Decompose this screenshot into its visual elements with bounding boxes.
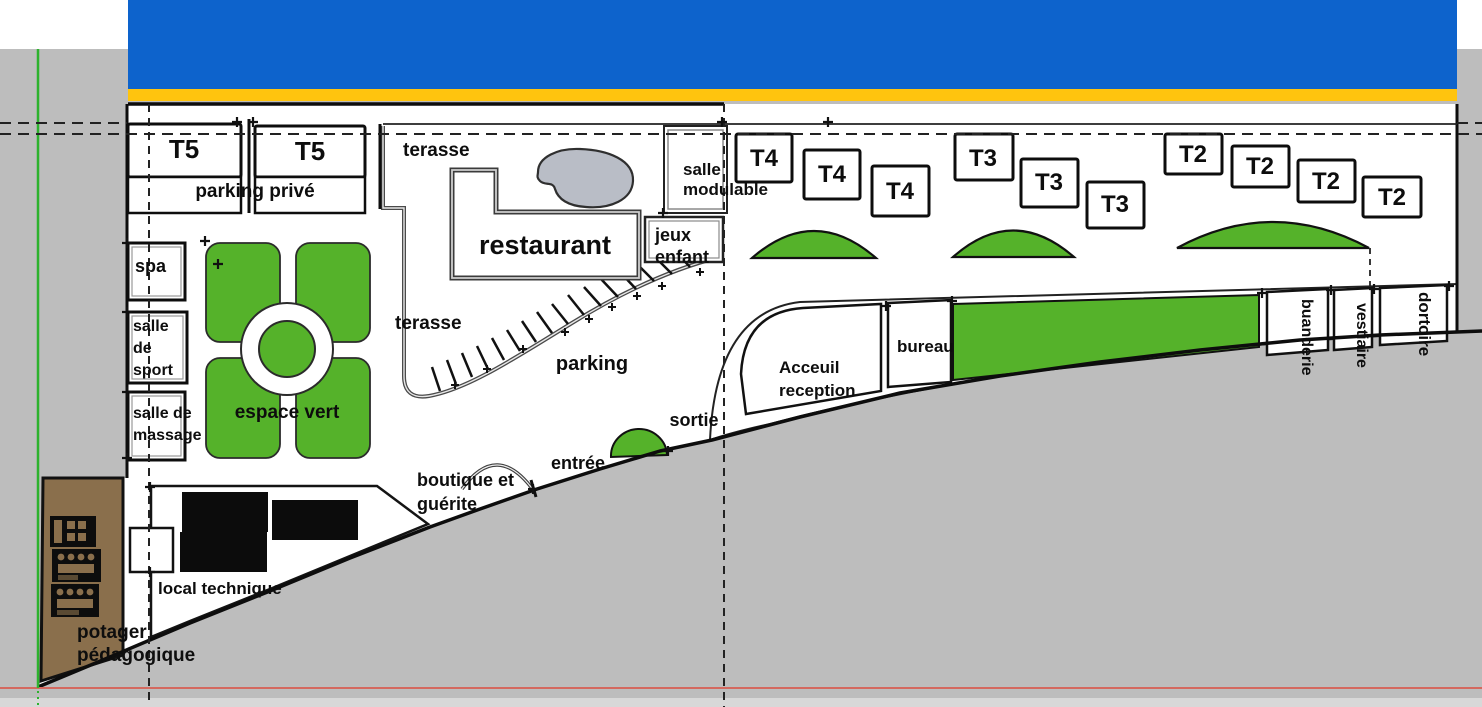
label-t4-1: T4 [750,145,779,172]
label-t3-2: T3 [1035,169,1063,196]
reception-building-band [710,284,1457,440]
label-entree: entrée [551,453,605,473]
label-t2-2: T2 [1246,153,1274,180]
site-plan-drawing: T5 T5 T4 T4 T4 T3 T3 T3 T2 T2 T2 T2 park… [0,0,1482,707]
label-espace-vert: espace vert [235,402,340,423]
label-parking-prive: parking privé [195,181,314,202]
solar-panel [182,492,268,532]
label-t3-3: T3 [1101,191,1129,218]
label-t4-3: T4 [886,178,915,205]
label-t5-1: T5 [169,134,199,164]
label-t2-3: T2 [1312,168,1340,195]
solar-panel [180,532,267,572]
buanderie-room [1267,289,1328,355]
label-bureau: bureau [897,337,954,356]
label-t2-4: T2 [1378,184,1406,211]
site-plan-page: { "plan": { "units": { "t5_1": "T5", "t5… [0,0,1482,707]
jeux-enfant-box [645,217,723,262]
label-vestiaire: vestiaire [1353,303,1370,368]
green-roof-strip [953,295,1259,380]
bottom-margin [0,698,1482,707]
label-sortie: sortie [669,410,718,430]
label-parking: parking [556,353,628,375]
label-spa: spa [135,256,167,276]
technical-box [130,528,173,572]
label-local-technique: local technique [158,579,282,598]
label-terasse-haut: terasse [403,140,470,161]
label-t3-1: T3 [969,145,997,172]
label-t2-1: T2 [1179,141,1207,168]
road-blue-band [128,0,1457,89]
salle-modulable-box [664,126,727,213]
local-technique-area [130,486,428,637]
label-t4-2: T4 [818,161,847,188]
potager-area [41,478,123,681]
salle-de-sport-room [128,312,187,383]
label-restaurant: restaurant [479,230,611,260]
label-t5-2: T5 [295,136,325,166]
label-terasse-bas: terasse [395,313,462,334]
garden-center-circle [259,321,315,377]
label-buanderie: buanderie [1298,299,1315,376]
garden-bed-icons [50,516,101,617]
road-yellow-stripe [128,89,1457,101]
salle-de-massage-room [128,392,185,460]
solar-panel [272,500,358,540]
label-dortoir: dortoire [1415,292,1434,356]
